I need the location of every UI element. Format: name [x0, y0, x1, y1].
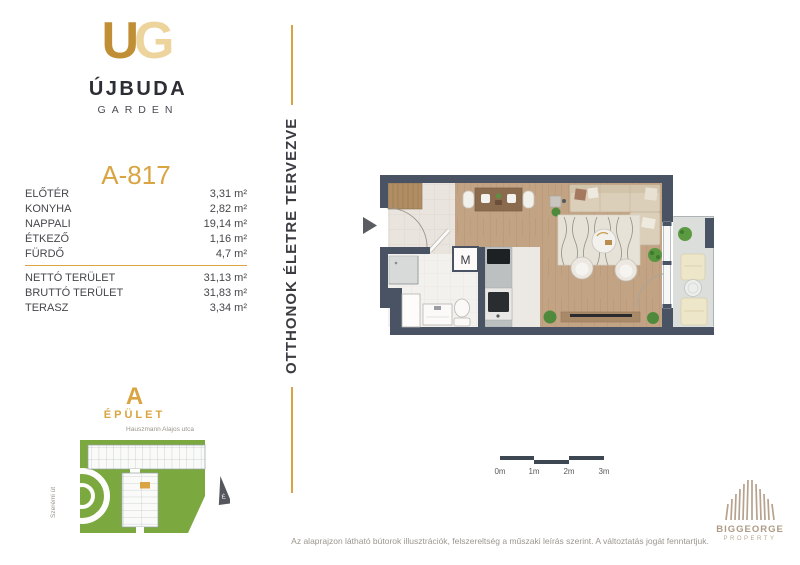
room-value: 3,31 m² — [210, 187, 247, 202]
terrace-table — [685, 280, 702, 297]
room-label: NAPPALI — [25, 217, 71, 232]
scalebar-segment — [534, 460, 569, 464]
room-value: 2,82 m² — [210, 202, 247, 217]
logo-subname: GARDEN — [48, 104, 228, 116]
total-row: NETTÓ TERÜLET 31,13 m² — [25, 271, 247, 286]
logo-monogram-g: G — [134, 12, 174, 70]
biggeorge-logo-icon — [718, 478, 782, 522]
floorplan-drawing: M — [360, 170, 716, 342]
plant-icon — [678, 227, 692, 241]
disclaimer-text: Az alaprajzon látható bútorok illusztrác… — [280, 536, 720, 546]
armchair — [615, 259, 637, 281]
sofa-pillow — [587, 187, 598, 198]
tv — [570, 314, 632, 317]
scalebar-segment — [569, 456, 604, 460]
gold-divider — [25, 265, 247, 266]
scalebar-segment — [500, 456, 534, 460]
scalebar-label: 2m — [563, 467, 574, 476]
washbasin-vanity — [423, 304, 452, 325]
total-value: 31,83 m² — [204, 286, 247, 301]
total-label: NETTÓ TERÜLET — [25, 271, 115, 286]
floorplan-page: UG ÚJBUDA GARDEN A-817 ELŐTÉR 3,31 m² KO… — [0, 0, 800, 565]
sofa-pillow — [574, 188, 586, 200]
biggeorge-stripes — [726, 480, 774, 520]
building-word: ÉPÜLET — [67, 409, 202, 421]
scalebar-label: 0m — [494, 467, 505, 476]
cooktop — [487, 249, 510, 264]
dining-chair — [463, 191, 474, 208]
toilet — [454, 299, 470, 326]
room-row: KONYHA 2,82 m² — [25, 202, 247, 217]
scalebar-label: 3m — [598, 467, 609, 476]
dining-chair — [523, 191, 534, 208]
room-label: ELŐTÉR — [25, 187, 69, 202]
shaft-niche — [402, 294, 420, 327]
total-value: 3,34 m² — [210, 301, 247, 316]
room-value: 4,7 m² — [216, 247, 247, 262]
terrace-lounger — [681, 254, 705, 280]
scalebar-label: 1m — [528, 467, 539, 476]
entry-arrow-icon — [363, 217, 377, 234]
total-row: TERASZ 3,34 m² — [25, 301, 247, 316]
washing-machine: M — [453, 247, 478, 271]
shower — [389, 256, 418, 284]
plant-icon — [647, 312, 659, 324]
kitchen-counter — [485, 247, 512, 327]
room-value: 19,14 m² — [204, 217, 247, 232]
totals-list: NETTÓ TERÜLET 31,13 m² BRUTTÓ TERÜLET 31… — [25, 271, 247, 316]
terrace-glass-door — [663, 222, 672, 308]
room-row: ELŐTÉR 3,31 m² — [25, 187, 247, 202]
kitchen-sink — [488, 292, 509, 312]
highlighted-unit — [140, 482, 150, 489]
plant-icon — [648, 248, 662, 262]
armchair — [571, 257, 593, 279]
room-label: KONYHA — [25, 202, 71, 217]
biggeorge-name: BIGGEORGE — [700, 524, 800, 535]
site-path — [136, 527, 144, 533]
room-list: ELŐTÉR 3,31 m² KONYHA 2,82 m² NAPPALI 19… — [25, 187, 247, 262]
site-building-north — [88, 445, 205, 469]
total-label: BRUTTÓ TERÜLET — [25, 286, 123, 301]
total-label: TERASZ — [25, 301, 68, 316]
logo-monogram-u: U — [101, 12, 137, 70]
wardrobe — [388, 183, 422, 209]
logo-monogram: UG — [83, 10, 193, 72]
site-map: É — [70, 436, 230, 548]
scale-bar: 0m 1m 2m 3m — [500, 456, 604, 478]
site-path — [130, 469, 140, 473]
room-row: ÉTKEZŐ 1,16 m² — [25, 232, 247, 247]
street-label-top: Hauszmann Alajos utca — [100, 426, 220, 433]
building-letter: A — [67, 383, 202, 411]
plant-icon — [544, 311, 557, 324]
room-label: ÉTKEZŐ — [25, 232, 69, 247]
kitchen-floor-strip — [512, 247, 540, 327]
tagline-rule-top — [291, 25, 293, 105]
street-label-left: Szerémi út — [50, 466, 60, 518]
tagline-rule-bottom — [291, 387, 293, 493]
site-building-a — [122, 473, 158, 527]
room-row: NAPPALI 19,14 m² — [25, 217, 247, 232]
room-row: FÜRDŐ 4,7 m² — [25, 247, 247, 262]
total-value: 31,13 m² — [204, 271, 247, 286]
north-arrow-icon: É — [213, 475, 230, 506]
biggeorge-subname: PROPERTY — [700, 536, 800, 542]
coffee-table — [592, 229, 616, 253]
sofa-pillow — [644, 187, 657, 200]
total-row: BRUTTÓ TERÜLET 31,83 m² — [25, 286, 247, 301]
room-label: FÜRDŐ — [25, 247, 64, 262]
washing-machine-label: M — [461, 253, 471, 267]
logo-name: ÚJBUDA — [48, 78, 228, 101]
room-value: 1,16 m² — [210, 232, 247, 247]
tagline-text: OTTHONOK ÉLETRE TERVEZVE — [282, 112, 301, 380]
